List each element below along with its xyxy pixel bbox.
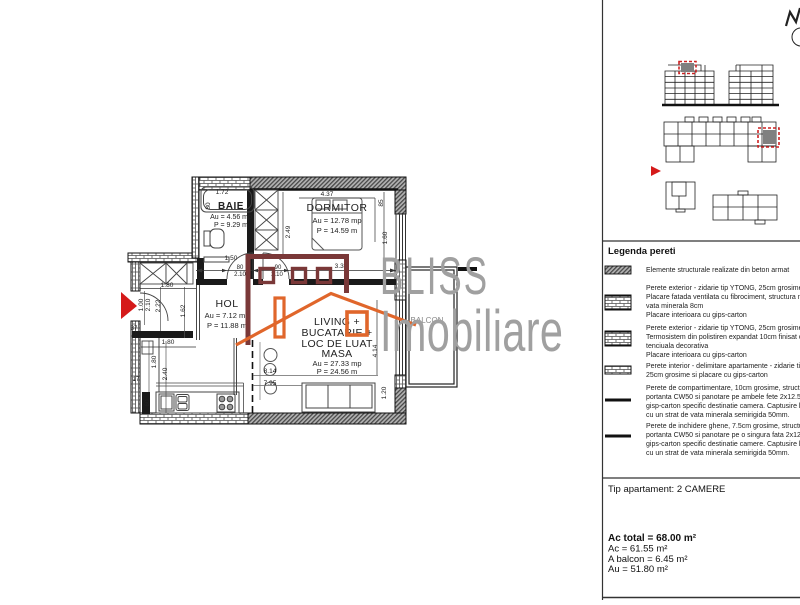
svg-text:BLISS: BLISS	[380, 246, 489, 306]
svg-text:Placare fatada ventilata cu fi: Placare fatada ventilata cu fibrociment,…	[646, 294, 800, 301]
svg-text:4.37: 4.37	[321, 191, 334, 198]
svg-text:Imobiliare: Imobiliare	[380, 298, 563, 364]
svg-text:vata minerala 8cm: vata minerala 8cm	[646, 303, 703, 310]
svg-text:tenciuala decorativa: tenciuala decorativa	[646, 343, 708, 350]
svg-text:Au = 4.56 mp: Au = 4.56 mp	[210, 214, 252, 221]
svg-text:Placare interioara cu gips-car: Placare interioara cu gips-carton	[646, 352, 747, 359]
svg-text:Elemente structurale realizate: Elemente structurale realizate din beton…	[646, 267, 789, 274]
svg-text:Perete exterior - zidarie tip: Perete exterior - zidarie tip YTONG, 25c…	[646, 325, 800, 332]
svg-text:Ac = 61.55 m²: Ac = 61.55 m²	[608, 544, 667, 555]
svg-text:P = 14.59 m: P = 14.59 m	[317, 226, 358, 235]
svg-text:Perete de compartimentare, 10c: Perete de compartimentare, 10cm grosime,…	[646, 385, 800, 392]
svg-text:1.60: 1.60	[382, 231, 389, 244]
svg-text:gisp-carton specific destinati: gisp-carton specific destinatie camera. …	[646, 403, 800, 410]
svg-text:8.14: 8.14	[264, 368, 277, 375]
svg-text:2.49: 2.49	[285, 225, 292, 238]
svg-text:2.22: 2.22	[155, 299, 162, 312]
svg-text:P = 9.29 m: P = 9.29 m	[214, 222, 248, 229]
svg-text:Au = 51.80 m²: Au = 51.80 m²	[608, 564, 668, 575]
svg-text:gips-carton specific destinati: gips-carton specific destinatie camere. …	[646, 441, 800, 448]
svg-text:4.14: 4.14	[372, 344, 379, 357]
svg-text:portanta CW50 si panotare pe a: portanta CW50 si panotare pe ambele fete…	[646, 394, 800, 401]
svg-text:1.00: 1.00	[138, 298, 145, 311]
svg-text:P = 11.88 m: P = 11.88 m	[207, 321, 247, 330]
svg-text:17: 17	[133, 377, 140, 383]
svg-text:80: 80	[237, 265, 244, 271]
svg-text:80: 80	[205, 202, 212, 210]
svg-text:BAIE: BAIE	[218, 201, 244, 212]
svg-text:25cm grosime si placare cu gip: 25cm grosime si placare cu gips-carton	[646, 372, 768, 379]
svg-text:Ac total = 68.00 m²: Ac total = 68.00 m²	[608, 533, 697, 544]
svg-text:1.62: 1.62	[180, 304, 187, 317]
svg-text:1.72: 1.72	[216, 189, 229, 196]
svg-text:Perete interior - delimitare a: Perete interior - delimitare apartamente…	[646, 363, 800, 370]
svg-text:37: 37	[131, 326, 138, 332]
svg-text:60: 60	[144, 399, 151, 407]
svg-text:Termosistem din polistiren exp: Termosistem din polistiren expandat 10cm…	[646, 334, 800, 341]
svg-text:1.50: 1.50	[225, 255, 238, 262]
svg-text:2.10: 2.10	[234, 272, 246, 278]
svg-text:Tip apartament: 2 CAMERE: Tip apartament: 2 CAMERE	[608, 484, 725, 495]
svg-text:1.80: 1.80	[161, 282, 174, 289]
svg-text:Au = 7.12 mp: Au = 7.12 mp	[205, 311, 250, 320]
svg-text:Legenda pereti: Legenda pereti	[608, 246, 676, 257]
svg-text:DORMITOR: DORMITOR	[307, 202, 368, 214]
svg-text:7.95: 7.95	[264, 380, 277, 387]
svg-text:P = 24.56 m: P = 24.56 m	[317, 367, 358, 376]
svg-text:Perete exterior - zidarie tip: Perete exterior - zidarie tip YTONG, 25c…	[646, 285, 800, 292]
svg-text:Perete de inchidere ghene, 7.5: Perete de inchidere ghene, 7.5cm grosime…	[646, 423, 800, 430]
svg-text:cu un strat de vata minerala s: cu un strat de vata minerala semirigida …	[646, 450, 790, 457]
svg-text:2.40: 2.40	[162, 367, 169, 380]
svg-text:Placare interioara cu gips-car: Placare interioara cu gips-carton	[646, 312, 747, 319]
svg-text:HOL: HOL	[215, 298, 238, 310]
svg-text:85: 85	[378, 199, 385, 207]
svg-text:Au = 12.78 mp: Au = 12.78 mp	[313, 216, 362, 225]
svg-text:1.80: 1.80	[151, 355, 158, 368]
svg-text:1.20: 1.20	[381, 386, 388, 399]
svg-text:90: 90	[275, 265, 282, 271]
svg-text:1.80: 1.80	[162, 339, 175, 346]
svg-text:2.10: 2.10	[145, 298, 152, 311]
svg-text:portanta CW50 si panotare pe o: portanta CW50 si panotare pe o singura f…	[646, 432, 800, 439]
svg-text:cu un strat de vata minerala s: cu un strat de vata minerala semirigida …	[646, 412, 790, 419]
